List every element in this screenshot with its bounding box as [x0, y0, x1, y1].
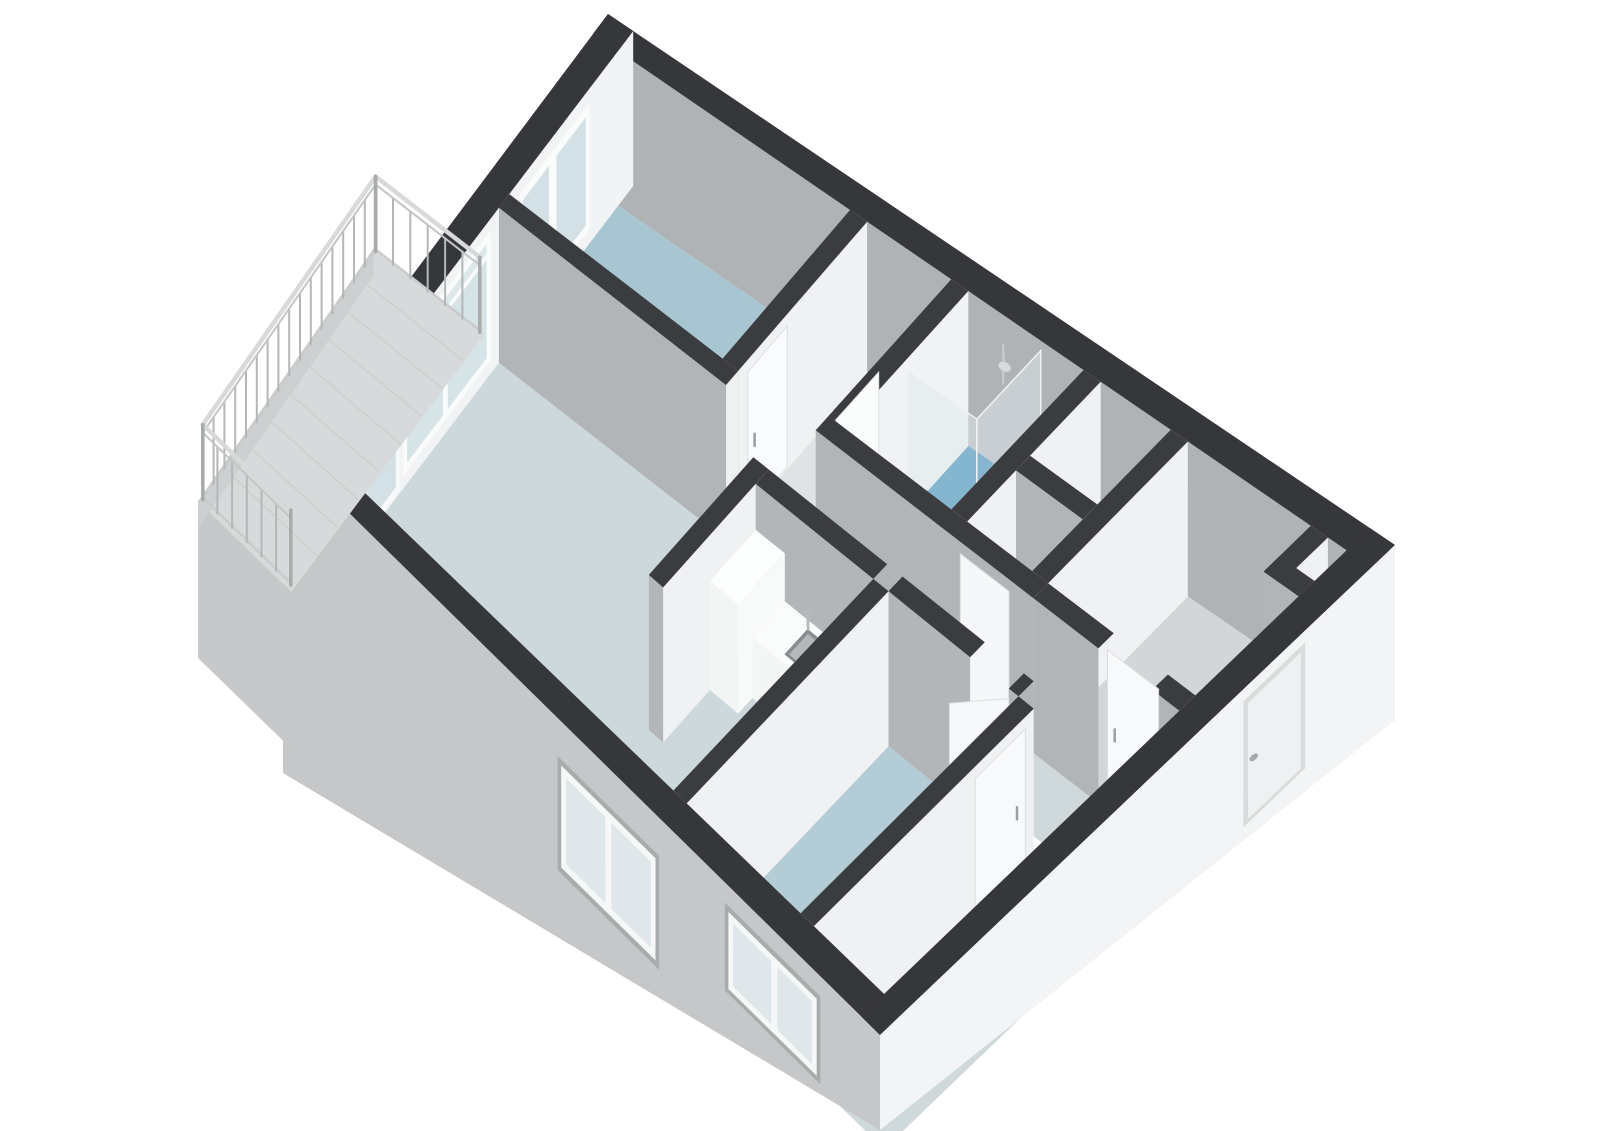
- floorplan-3d-rendering: [0, 0, 1600, 1131]
- shower-arm: [1003, 349, 1004, 363]
- wall-kitchen-stub: [649, 575, 663, 743]
- floorplan-stage: [0, 0, 1600, 1131]
